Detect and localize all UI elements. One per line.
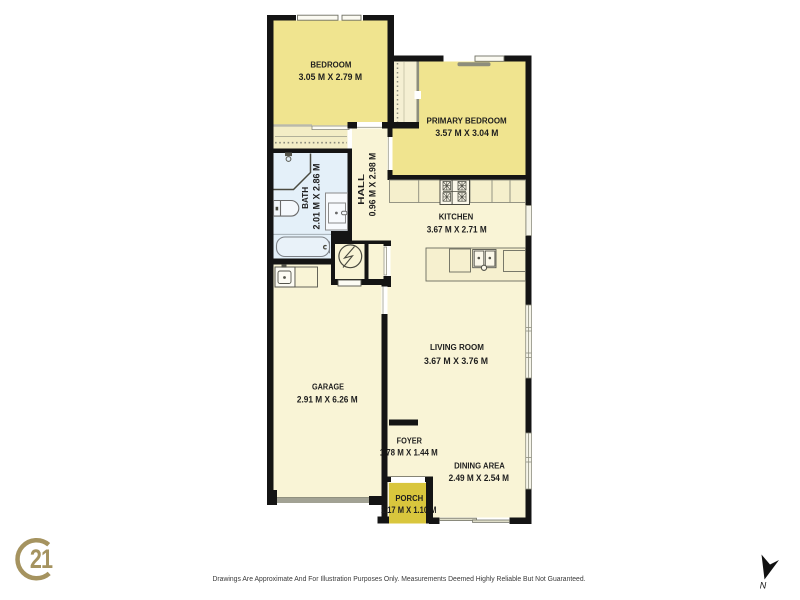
svg-text:3.67 M X 2.71 M: 3.67 M X 2.71 M xyxy=(427,224,487,234)
svg-text:N: N xyxy=(760,581,767,591)
svg-text:Drawings Are Approximate And F: Drawings Are Approximate And For Illustr… xyxy=(213,576,586,583)
svg-text:0.96 M X 2.98 M: 0.96 M X 2.98 M xyxy=(368,152,378,216)
svg-text:2.01 M X 2.86 M: 2.01 M X 2.86 M xyxy=(312,163,322,229)
svg-text:21: 21 xyxy=(30,545,53,575)
svg-text:1.78 M X 1.44 M: 1.78 M X 1.44 M xyxy=(380,448,438,458)
svg-text:PORCH: PORCH xyxy=(395,493,423,503)
svg-text:3.57 M X 3.04 M: 3.57 M X 3.04 M xyxy=(435,128,498,138)
svg-text:GARAGE: GARAGE xyxy=(312,381,344,391)
svg-text:3.05 M X 2.79 M: 3.05 M X 2.79 M xyxy=(299,72,363,82)
svg-text:BATH: BATH xyxy=(300,187,310,209)
svg-text:DINING AREA: DINING AREA xyxy=(454,460,505,470)
svg-text:KITCHEN: KITCHEN xyxy=(439,212,474,222)
svg-text:LIVING ROOM: LIVING ROOM xyxy=(430,342,484,352)
svg-text:3.67 M X 3.76 M: 3.67 M X 3.76 M xyxy=(424,356,488,366)
svg-text:HALL: HALL xyxy=(356,174,366,205)
svg-text:FOYER: FOYER xyxy=(397,436,423,446)
svg-text:PRIMARY BEDROOM: PRIMARY BEDROOM xyxy=(427,115,507,125)
svg-text:2.91 M X 6.26 M: 2.91 M X 6.26 M xyxy=(297,395,358,405)
svg-text:BEDROOM: BEDROOM xyxy=(310,60,351,70)
svg-text:2.49 M X 2.54 M: 2.49 M X 2.54 M xyxy=(449,473,510,483)
